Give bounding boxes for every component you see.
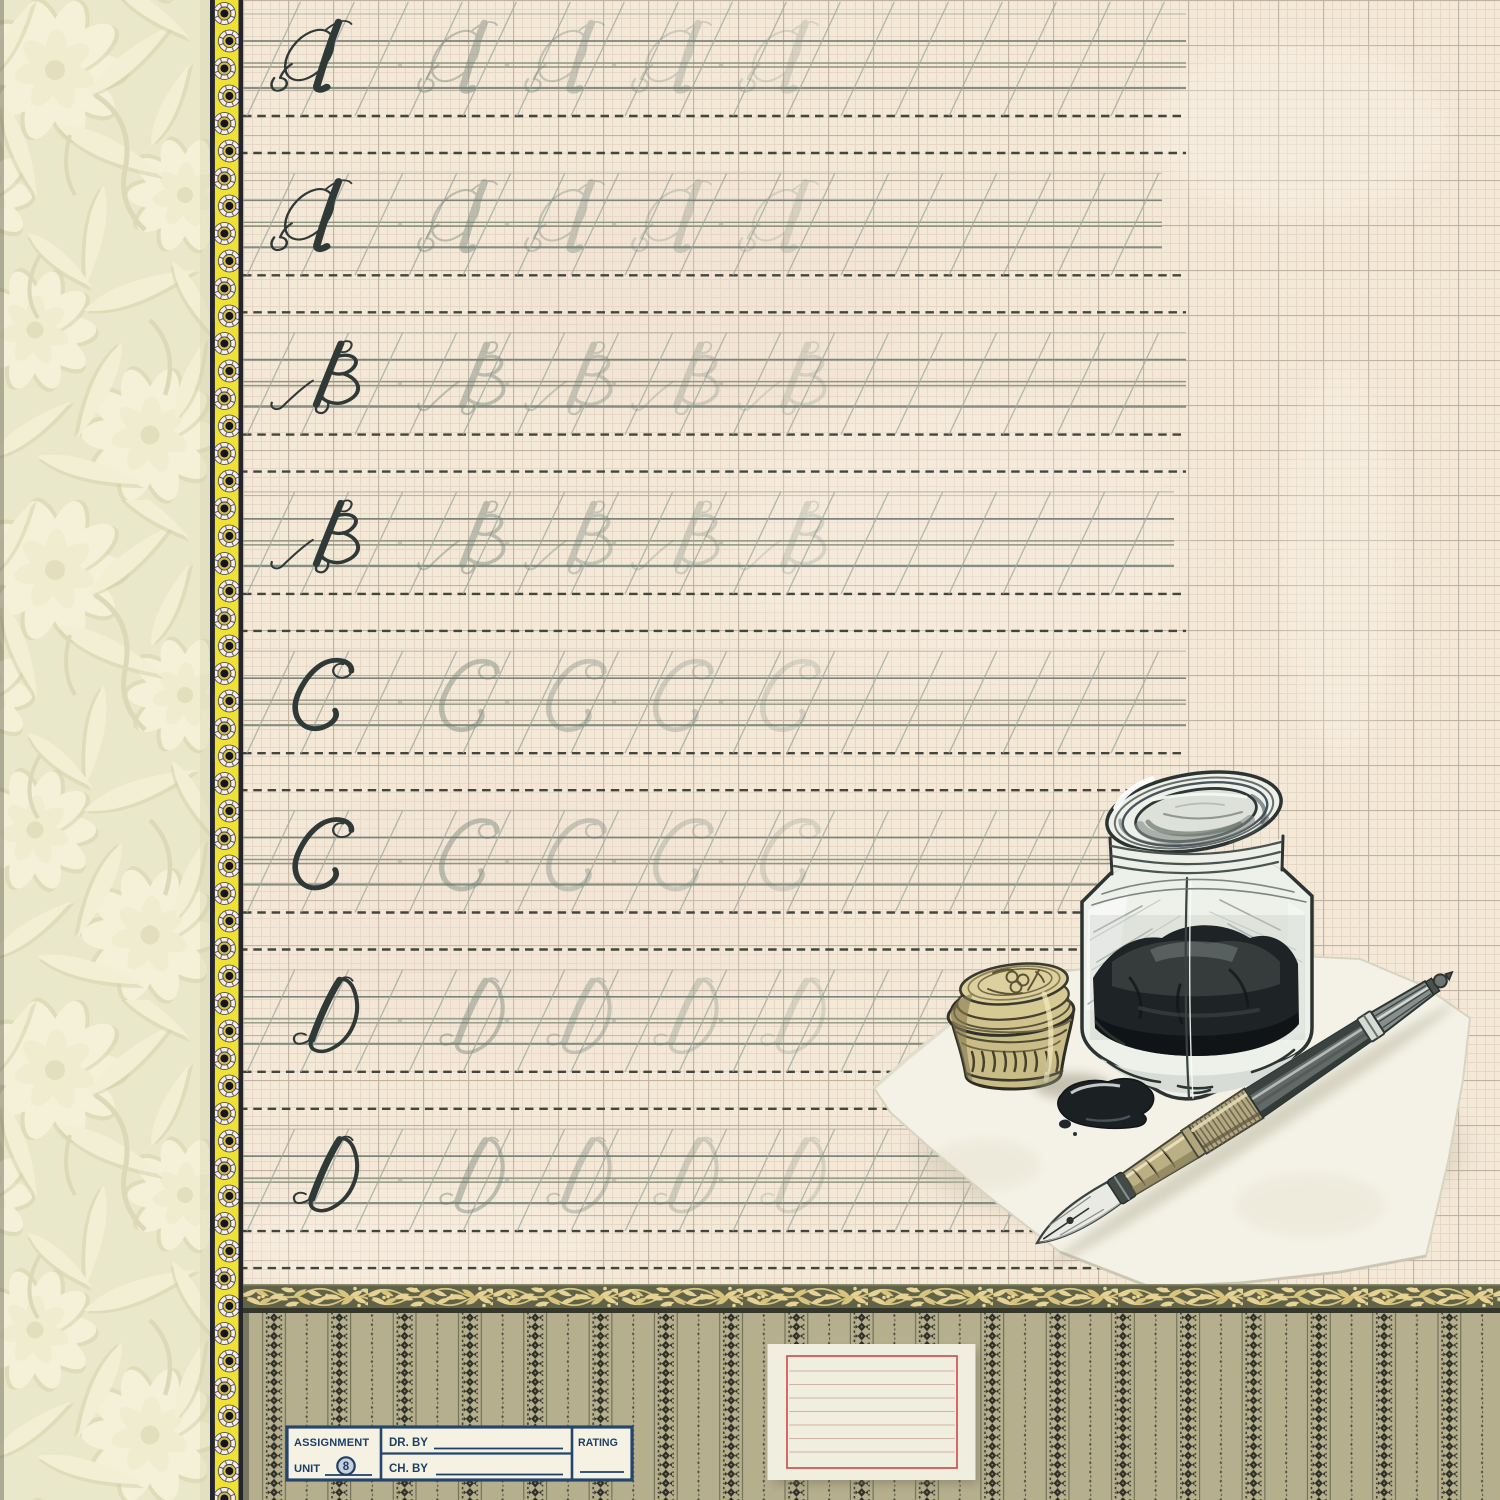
svg-text:DR. BY: DR. BY	[389, 1437, 428, 1449]
svg-text:ASSIGNMENT: ASSIGNMENT	[294, 1437, 369, 1449]
svg-text:8: 8	[343, 1461, 350, 1473]
svg-text:RATING: RATING	[578, 1437, 618, 1449]
svg-text:CH. BY: CH. BY	[389, 1463, 428, 1475]
svg-text:UNIT: UNIT	[294, 1463, 320, 1475]
